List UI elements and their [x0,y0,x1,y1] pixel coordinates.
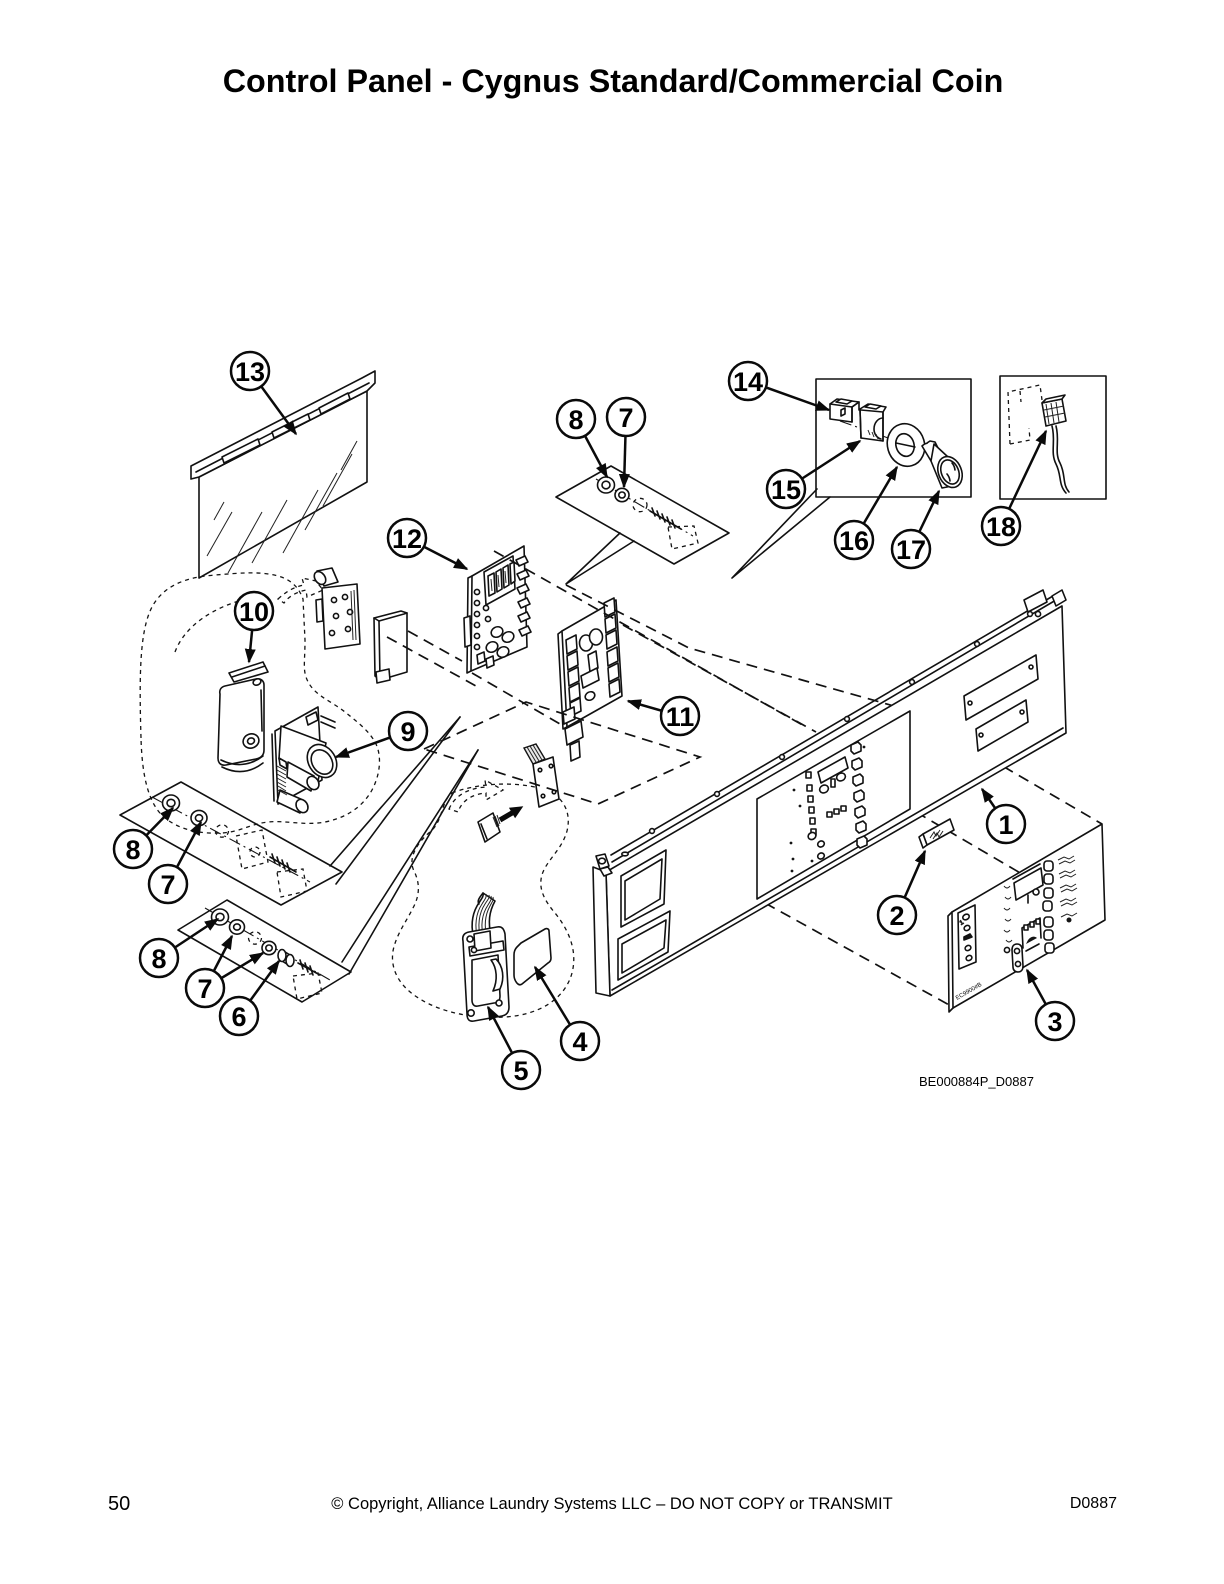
svg-text:11: 11 [666,702,695,732]
svg-text:7: 7 [160,870,175,900]
svg-text:2: 2 [889,901,904,931]
svg-text:15: 15 [771,475,801,505]
svg-text:8: 8 [568,405,583,435]
svg-text:4: 4 [572,1027,587,1057]
svg-text:7: 7 [618,403,633,433]
svg-text:9: 9 [400,717,415,747]
svg-text:5: 5 [513,1056,528,1086]
svg-text:3: 3 [1047,1007,1062,1037]
svg-text:© Copyright, Alliance Laundry: © Copyright, Alliance Laundry Systems LL… [331,1495,892,1513]
svg-text:1: 1 [998,810,1013,840]
svg-text:8: 8 [151,944,166,974]
svg-text:Control Panel - Cygnus Standar: Control Panel - Cygnus Standard/Commerci… [223,63,1004,99]
svg-text:10: 10 [239,597,269,627]
svg-text:7: 7 [197,974,212,1004]
svg-text:12: 12 [392,524,422,554]
svg-text:D0887: D0887 [1070,1495,1117,1512]
svg-text:18: 18 [986,512,1016,542]
svg-text:16: 16 [839,526,869,556]
svg-text:BE000884P_D0887: BE000884P_D0887 [919,1074,1034,1089]
svg-text:17: 17 [896,535,926,565]
svg-text:6: 6 [231,1002,246,1032]
svg-text:8: 8 [125,835,140,865]
svg-text:50: 50 [108,1493,130,1515]
svg-text:13: 13 [235,357,265,387]
svg-text:14: 14 [733,367,763,397]
